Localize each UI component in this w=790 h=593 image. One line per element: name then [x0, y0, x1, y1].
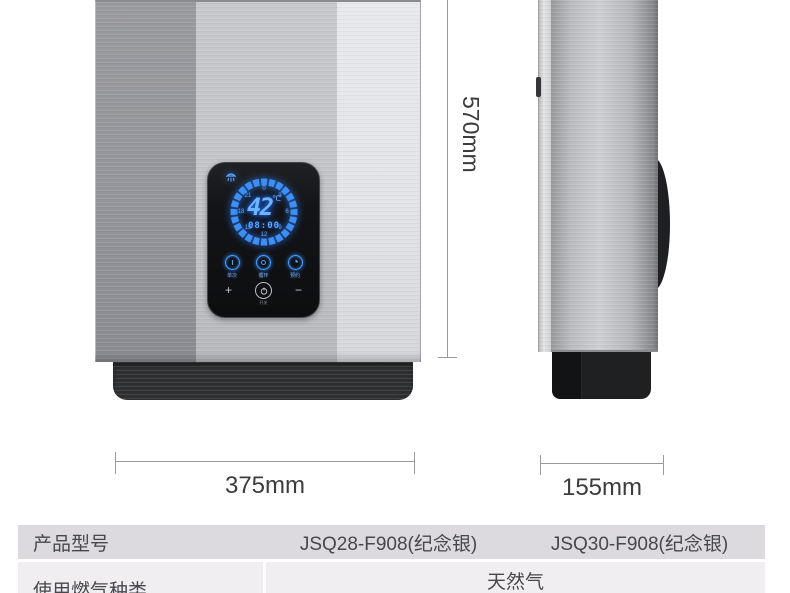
reserve-icon [288, 255, 303, 270]
temperature-dial: 0 3 6 9 12 15 18 21 42℃ 08:00 [224, 172, 304, 252]
width-dimension-label: 375mm [115, 472, 415, 500]
temperature-display: 42℃ [224, 193, 304, 221]
shower-icon [224, 172, 238, 183]
width-dimension-tick-left [115, 452, 116, 474]
front-metal-band-dark [96, 2, 196, 362]
spec-value-gas-type: 天然气 [266, 567, 765, 593]
cycle-icon [256, 255, 271, 270]
depth-dimension-tick-right [663, 455, 664, 475]
temperature-value: 42 [247, 193, 272, 221]
button-label: 预约 [290, 272, 300, 279]
spec-label-gas-type: 使用燃气种类 [33, 576, 147, 593]
dial-number: 0 [262, 186, 265, 192]
button-label: 循环 [258, 272, 268, 279]
side-view-black-base [552, 352, 651, 399]
width-dimension-tick-right [414, 452, 415, 474]
side-view-front-edge [538, 0, 551, 352]
spec-row-gas-type: 使用燃气种类 天然气 [18, 562, 765, 593]
side-view-edge-notch [536, 77, 541, 97]
height-dimension-tick [438, 357, 457, 358]
water-heater-side-view [551, 0, 658, 352]
depth-dimension-label: 155mm [540, 474, 664, 502]
depth-dimension-tick-left [540, 455, 541, 475]
front-view-black-base [113, 362, 413, 400]
power-button: 开关 [255, 282, 272, 306]
power-button-label: 开关 [260, 300, 268, 306]
front-body-bottom-shadow [95, 352, 421, 362]
dial-number: 12 [261, 232, 268, 238]
spec-label-model: 产品型号 [18, 529, 263, 556]
panel-adjust-row: + 开关 − [208, 282, 319, 306]
height-dimension-label: 570mm [457, 96, 484, 173]
single-heat-button: 单次 [225, 255, 240, 279]
button-label: 单次 [227, 272, 237, 279]
depth-dimension-line [540, 463, 663, 464]
front-metal-band-light [337, 2, 420, 362]
side-base-flue-section [552, 352, 582, 399]
single-heat-icon [225, 255, 240, 270]
spec-table: 产品型号 JSQ28-F908(纪念银) JSQ30-F908(纪念银) 使用燃… [18, 525, 765, 593]
height-dimension-line [447, 0, 448, 357]
spec-value-model-2: JSQ30-F908(纪念银) [514, 529, 765, 556]
width-dimension-line [115, 461, 414, 462]
plus-button: + [225, 282, 232, 298]
product-spec-image: 0 3 6 9 12 15 18 21 42℃ 08:00 [0, 0, 790, 593]
reserve-button: 预约 [288, 255, 303, 279]
cycle-button: 循环 [256, 255, 271, 279]
spec-value-model-1: JSQ28-F908(纪念银) [263, 529, 514, 556]
power-icon [255, 282, 272, 299]
temperature-unit: ℃ [272, 194, 281, 203]
spec-row-model: 产品型号 JSQ28-F908(纪念银) JSQ30-F908(纪念银) [18, 525, 765, 559]
time-display: 08:00 [224, 221, 304, 231]
minus-button: − [295, 282, 302, 298]
panel-function-buttons: 单次 循环 预约 [208, 255, 319, 279]
control-panel: 0 3 6 9 12 15 18 21 42℃ 08:00 [207, 162, 320, 318]
